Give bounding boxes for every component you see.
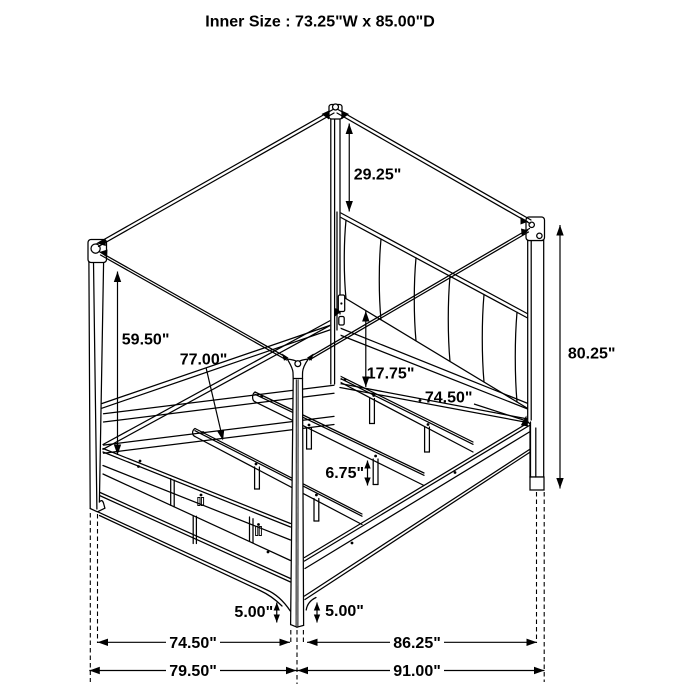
svg-text:80.25": 80.25" [568,346,616,363]
svg-text:5.00": 5.00" [234,604,273,621]
svg-text:6.75": 6.75" [325,465,364,482]
svg-text:77.00": 77.00" [180,352,228,369]
svg-text:59.50": 59.50" [122,332,170,349]
svg-text:Inner Size : 73.25"W x 85.00"D: Inner Size : 73.25"W x 85.00"D [205,14,435,31]
svg-text:74.50": 74.50" [425,389,473,406]
svg-text:91.00": 91.00" [393,663,441,680]
svg-text:5.00": 5.00" [325,603,364,620]
svg-text:86.25": 86.25" [393,635,441,652]
svg-text:29.25": 29.25" [354,167,402,184]
svg-text:74.50": 74.50" [169,635,217,652]
svg-text:79.50": 79.50" [169,663,217,680]
svg-text:17.75": 17.75" [367,366,415,383]
